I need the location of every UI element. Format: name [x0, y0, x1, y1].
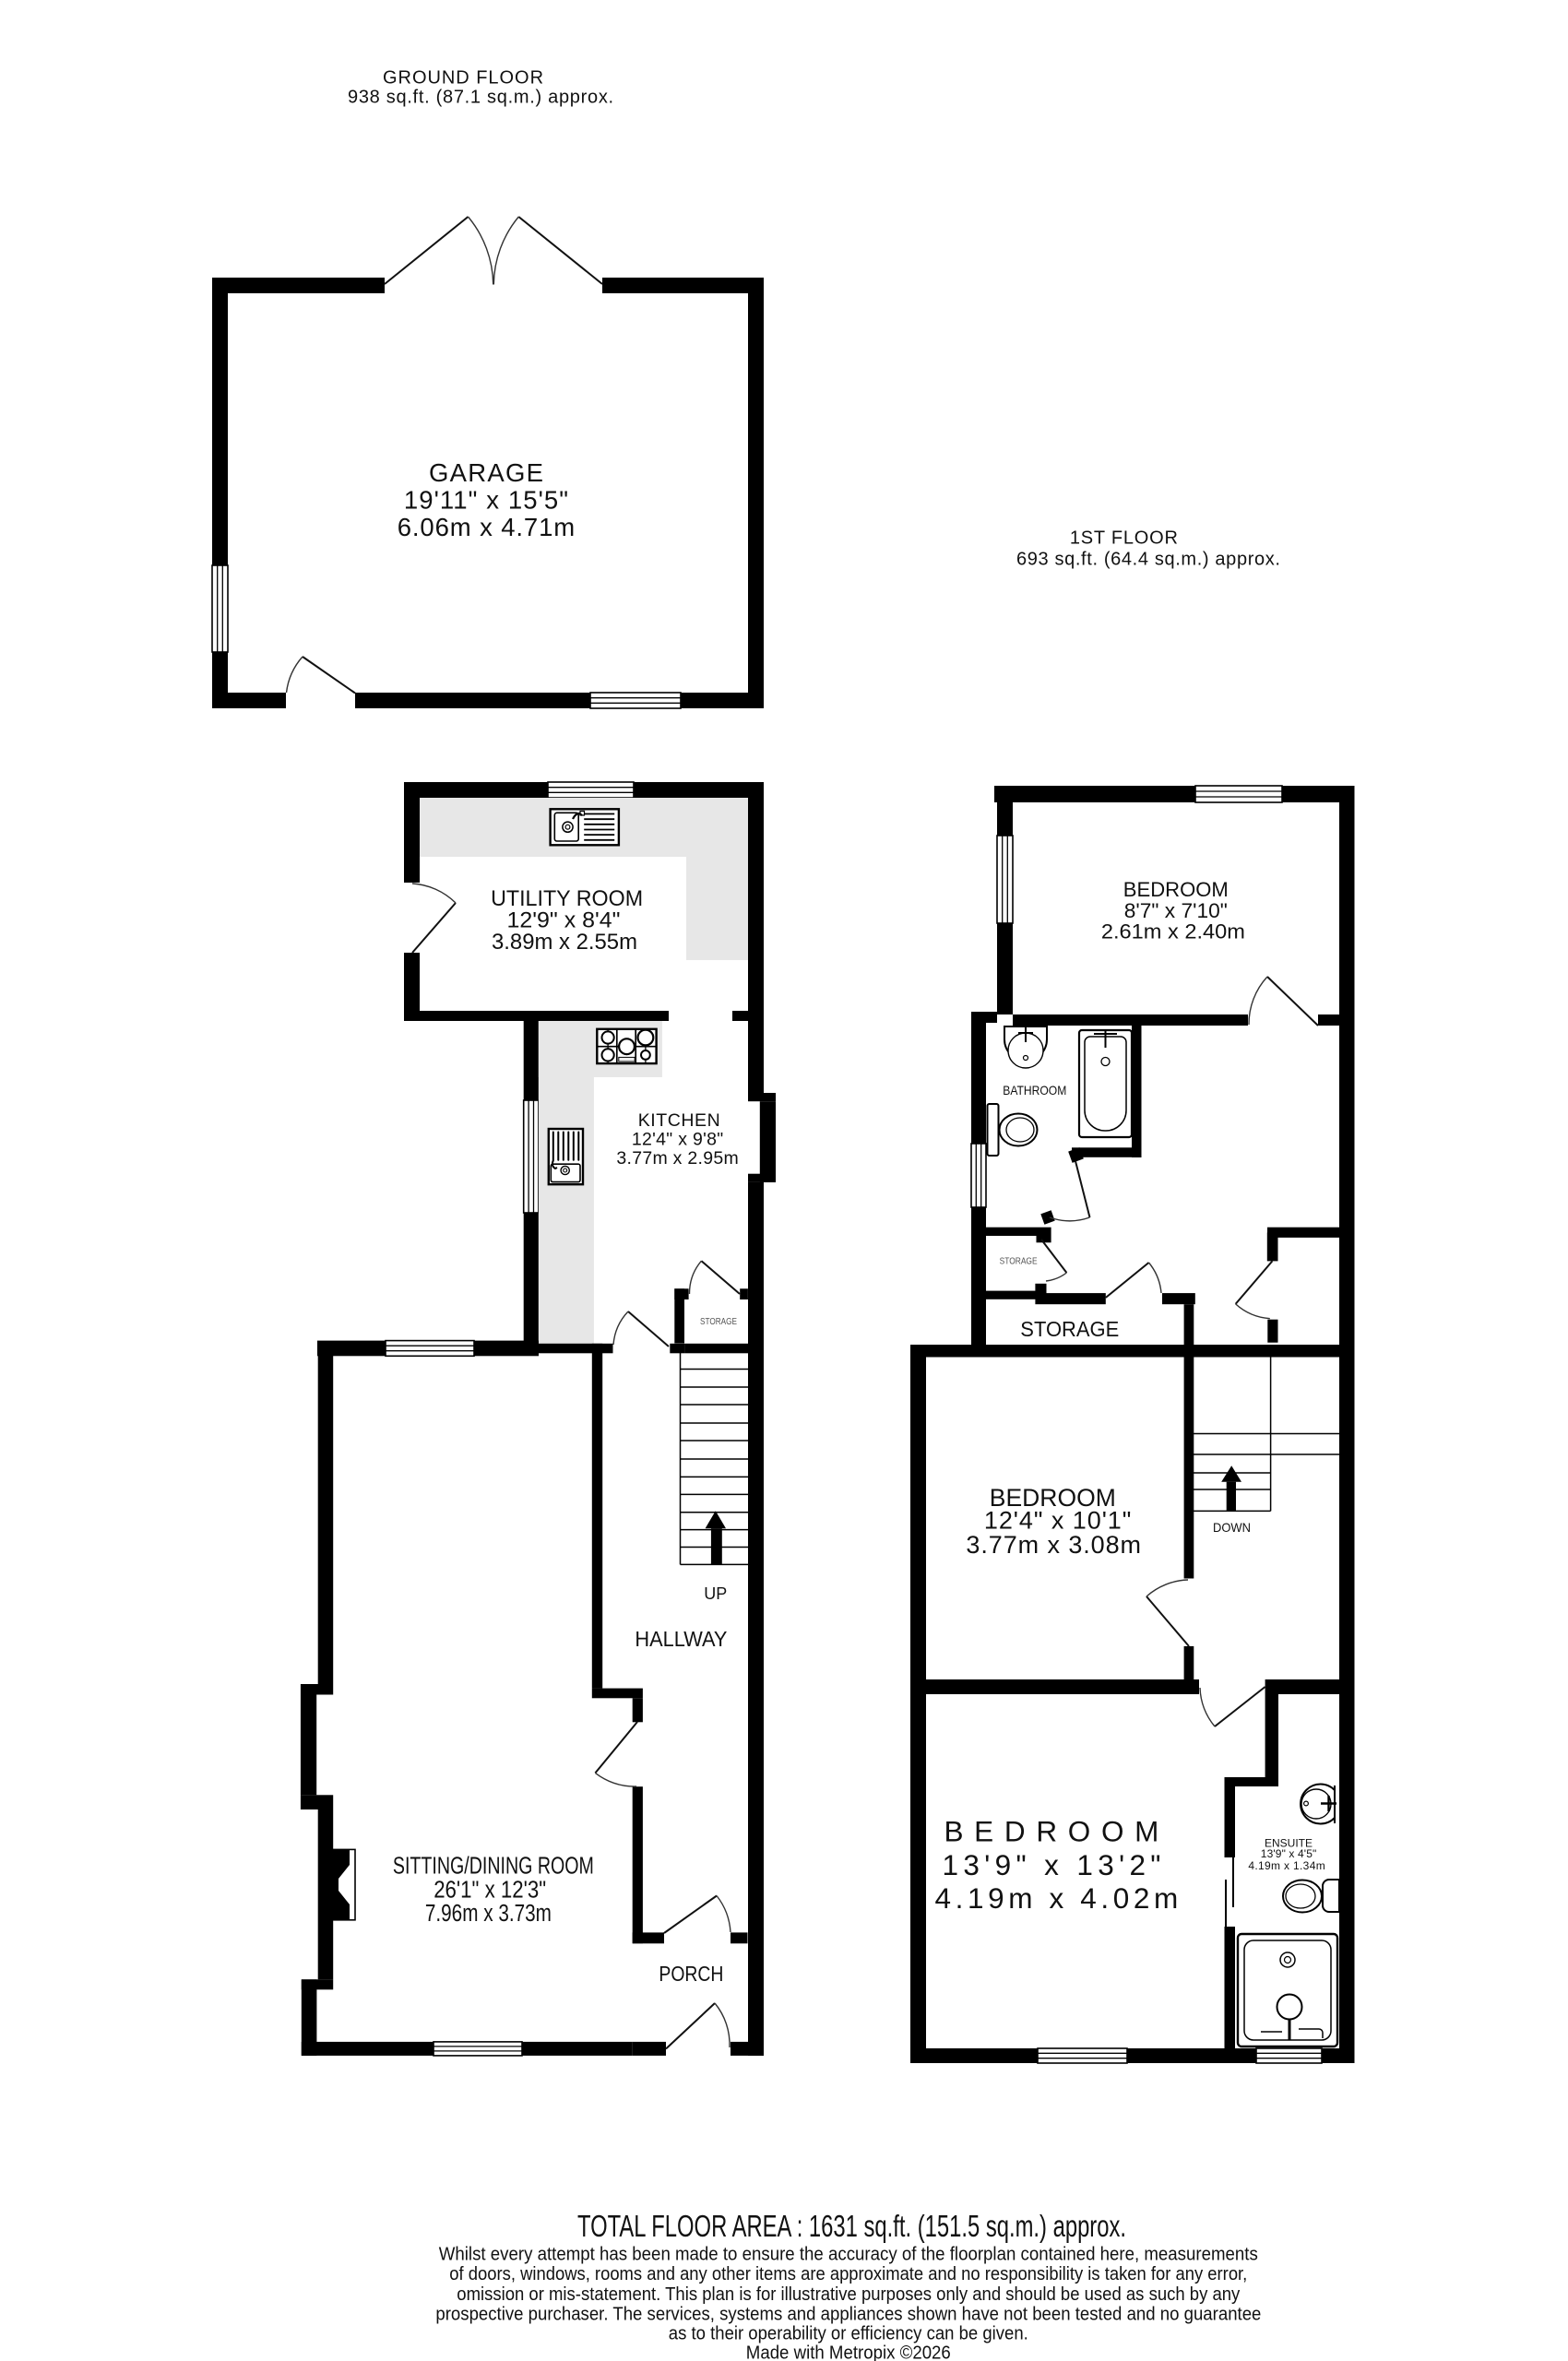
svg-text:4.19m x 4.02m: 4.19m x 4.02m [935, 1881, 1182, 1915]
svg-text:STORAGE: STORAGE [1000, 1256, 1038, 1267]
svg-text:Made with Metropix ©2026: Made with Metropix ©2026 [746, 2343, 951, 2361]
svg-text:1ST FLOOR: 1ST FLOOR [1070, 528, 1179, 549]
svg-text:7.96m x 3.73m: 7.96m x 3.73m [425, 1901, 552, 1927]
svg-text:GROUND FLOOR: GROUND FLOOR [383, 68, 544, 89]
svg-text:693 sq.ft. (64.4 sq.m.) approx: 693 sq.ft. (64.4 sq.m.) approx. [1016, 550, 1281, 570]
svg-text:13'9" x 13'2": 13'9" x 13'2" [943, 1848, 1166, 1881]
svg-text:19'11" x 15'5": 19'11" x 15'5" [404, 486, 569, 515]
svg-text:3.77m x 3.08m: 3.77m x 3.08m [966, 1531, 1142, 1559]
svg-text:3.89m x 2.55m: 3.89m x 2.55m [492, 930, 637, 955]
svg-text:HALLWAY: HALLWAY [635, 1627, 727, 1651]
svg-text:BEDROOM: BEDROOM [944, 1814, 1170, 1847]
svg-text:KITCHEN: KITCHEN [638, 1110, 721, 1131]
svg-text:2.61m x 2.40m: 2.61m x 2.40m [1101, 920, 1245, 943]
svg-text:GARAGE: GARAGE [429, 458, 544, 487]
svg-text:omission or mis-statement. Thi: omission or mis-statement. This plan is … [457, 2284, 1240, 2305]
svg-text:prospective purchaser. The ser: prospective purchaser. The services, sys… [435, 2305, 1261, 2325]
svg-text:3.77m x 2.95m: 3.77m x 2.95m [616, 1148, 739, 1169]
svg-text:4.19m x 1.34m: 4.19m x 1.34m [1248, 1859, 1325, 1872]
svg-text:UP: UP [704, 1584, 727, 1603]
svg-text:as to their operability or eff: as to their operability or efficiency ca… [669, 2324, 1028, 2344]
svg-text:TOTAL FLOOR AREA : 1631 sq.ft.: TOTAL FLOOR AREA : 1631 sq.ft. (151.5 sq… [577, 2209, 1126, 2243]
svg-text:of doors, windows, rooms and a: of doors, windows, rooms and any other i… [449, 2264, 1247, 2284]
svg-text:6.06m x 4.71m: 6.06m x 4.71m [398, 513, 576, 541]
svg-text:Whilst every attempt has been: Whilst every attempt has been made to en… [439, 2245, 1258, 2265]
svg-text:DOWN: DOWN [1213, 1520, 1251, 1535]
svg-text:938 sq.ft. (87.1 sq.m.) approx: 938 sq.ft. (87.1 sq.m.) approx. [348, 88, 614, 108]
svg-text:BEDROOM: BEDROOM [1123, 878, 1229, 901]
svg-text:PORCH: PORCH [659, 1962, 723, 1986]
svg-text:STORAGE: STORAGE [1020, 1317, 1119, 1341]
svg-text:STORAGE: STORAGE [700, 1316, 737, 1327]
svg-text:SITTING/DINING ROOM: SITTING/DINING ROOM [393, 1853, 594, 1879]
svg-text:12'4" x 9'8": 12'4" x 9'8" [632, 1130, 724, 1150]
svg-text:8'7" x 7'10": 8'7" x 7'10" [1124, 899, 1228, 922]
svg-text:BATHROOM: BATHROOM [1003, 1083, 1066, 1097]
svg-text:26'1" x 12'3": 26'1" x 12'3" [434, 1877, 546, 1903]
